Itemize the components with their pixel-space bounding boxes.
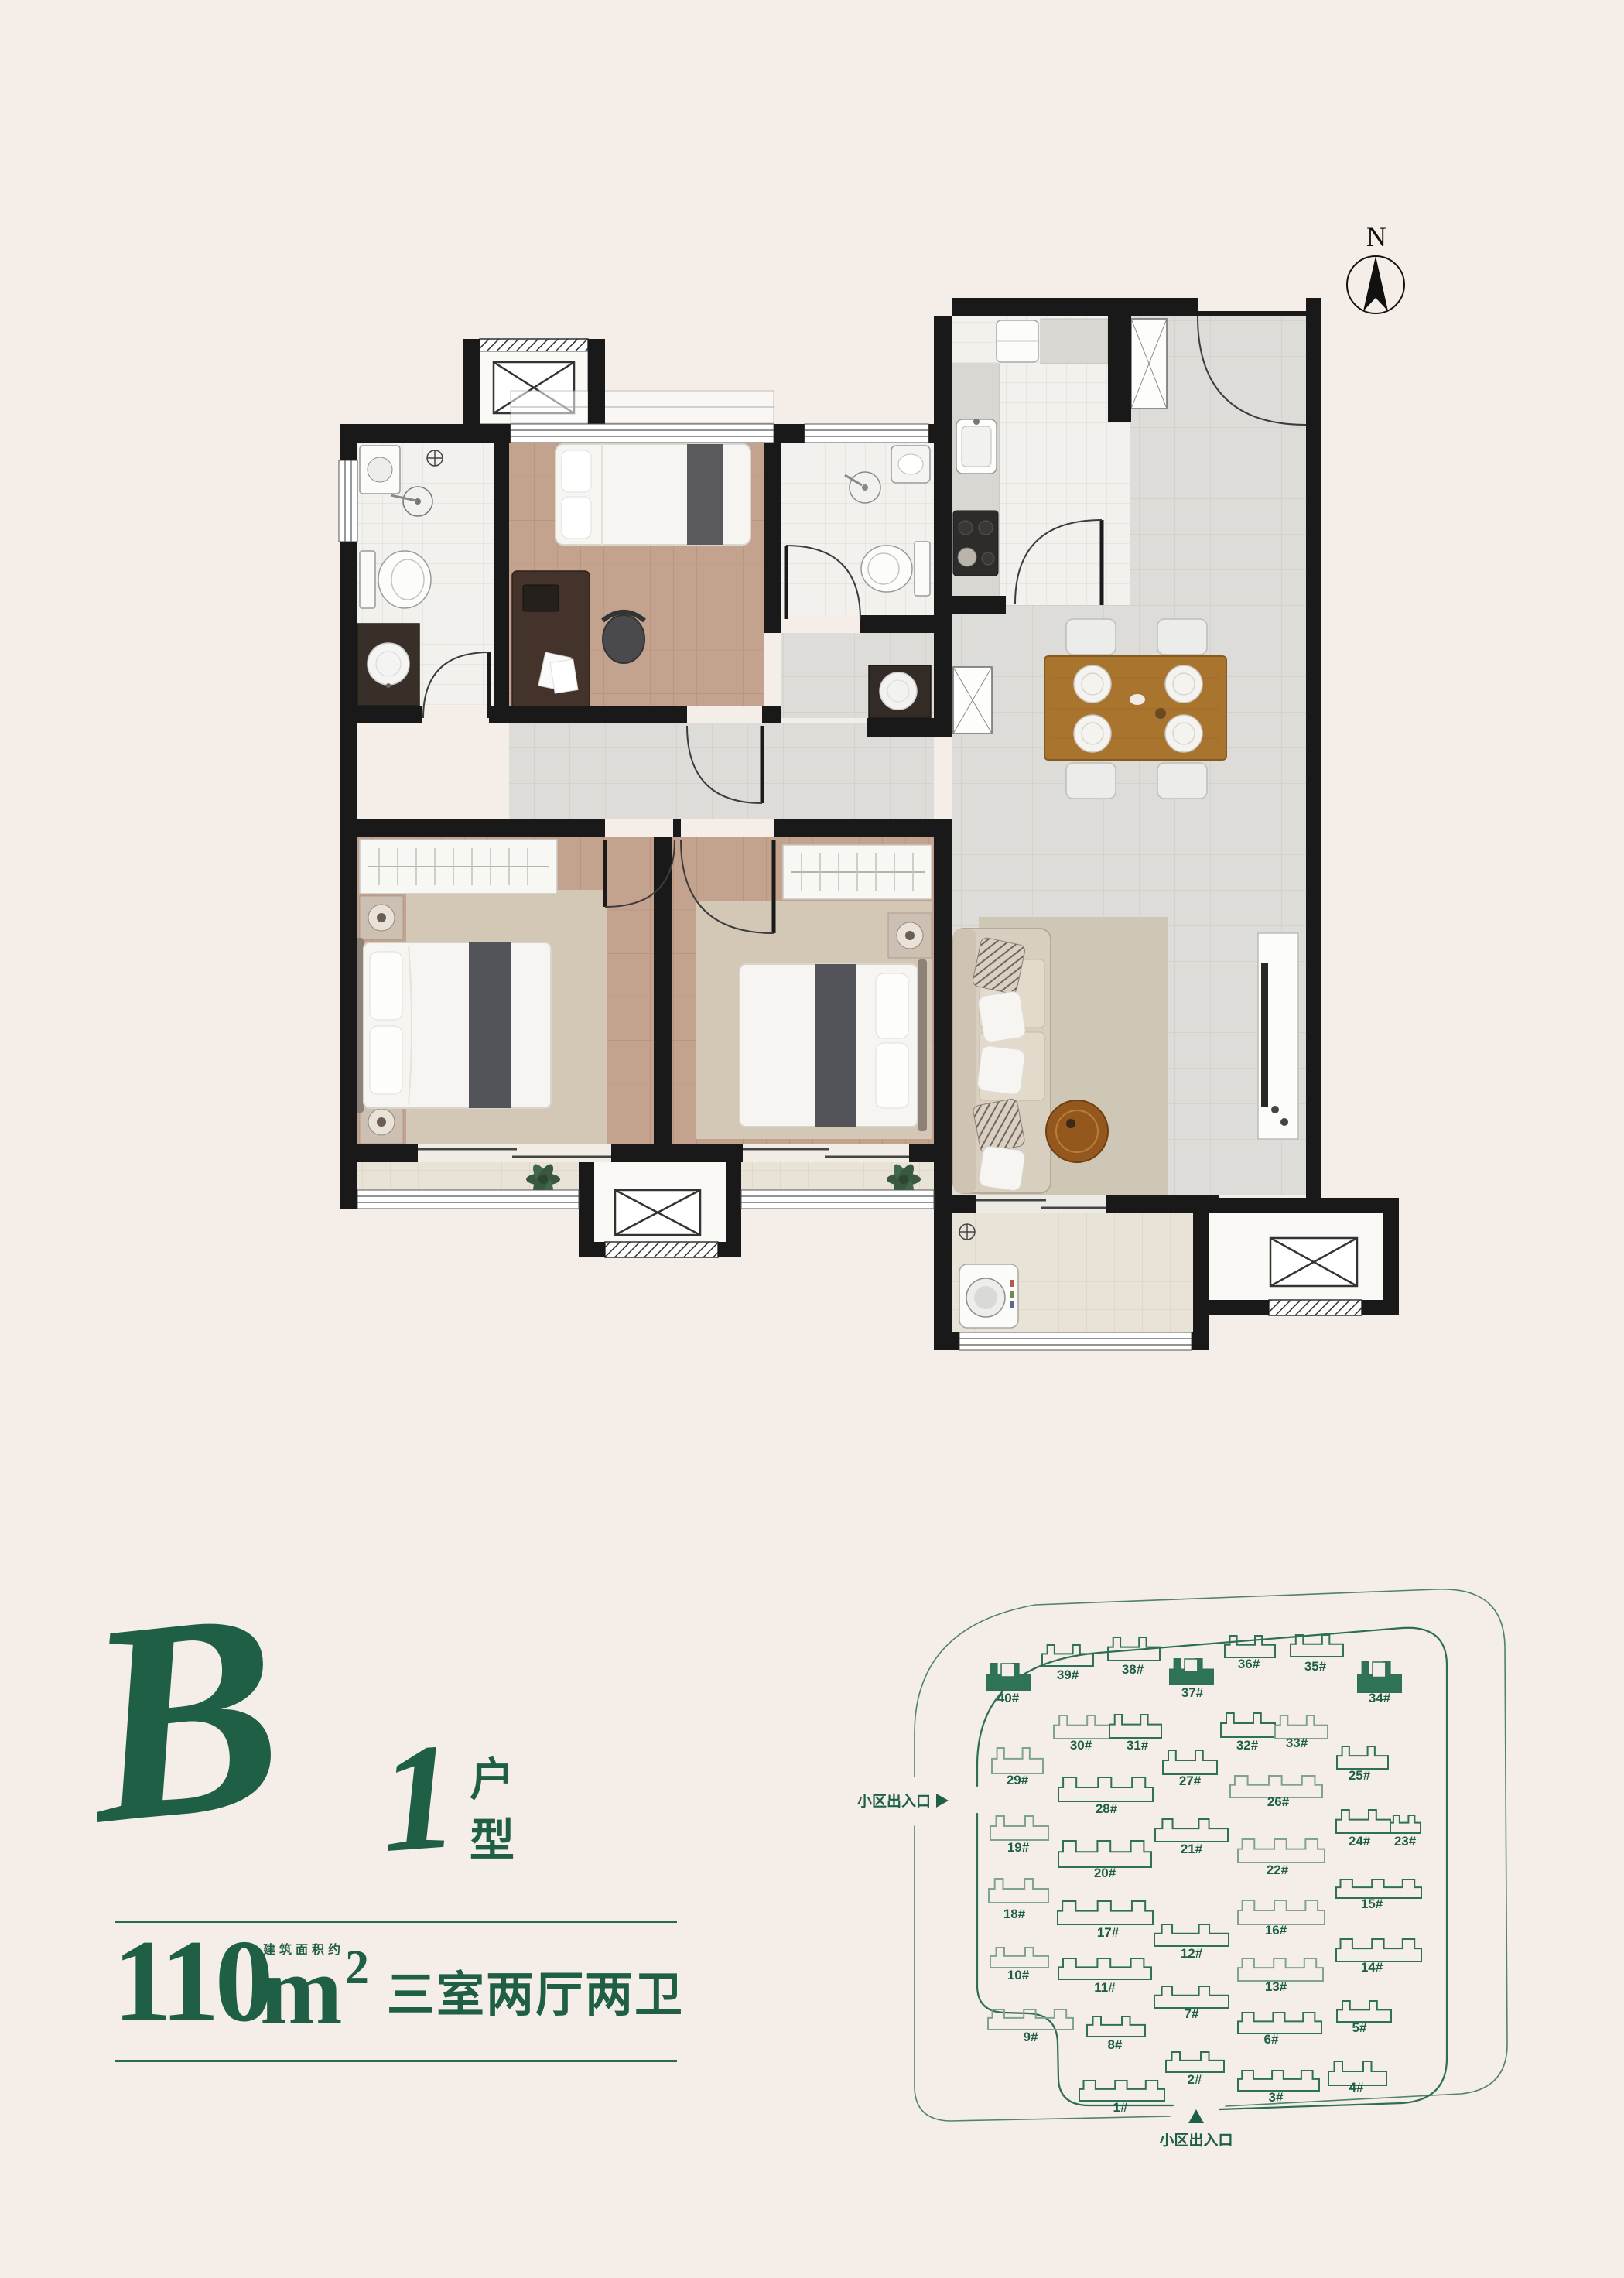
sofa-icon <box>953 929 1051 1193</box>
site-building <box>1058 1841 1151 1867</box>
dining-chair-icon <box>1157 763 1207 799</box>
site-building <box>1087 2016 1145 2037</box>
site-building-label: 6# <box>1264 2032 1279 2047</box>
entry-closet-icon <box>1131 319 1167 409</box>
site-building-label: 36# <box>1238 1657 1260 1671</box>
entrance-label-left: 小区出入口 <box>857 1792 931 1810</box>
site-building-label: 26# <box>1267 1794 1290 1809</box>
site-building-label: 35# <box>1304 1659 1327 1674</box>
window <box>741 1190 934 1209</box>
bed-icon <box>354 938 551 1113</box>
site-building <box>1163 1750 1217 1774</box>
site-building <box>1054 1715 1109 1739</box>
site-building <box>1238 1900 1325 1924</box>
toilet-icon <box>861 542 930 596</box>
site-building-label: 18# <box>1003 1907 1026 1921</box>
site-building-label: 13# <box>1265 1979 1287 1994</box>
site-building-label: 39# <box>1057 1667 1079 1682</box>
master-bedroom <box>354 840 557 1144</box>
entrance-arrow-up-icon <box>1188 2109 1204 2123</box>
site-building <box>1058 1958 1151 1979</box>
drain-icon <box>427 450 443 466</box>
stove-icon <box>953 511 998 576</box>
wardrobe-icon <box>783 845 932 899</box>
nightstand-icon <box>888 913 932 958</box>
area-unit: m <box>260 1941 343 2040</box>
fridge-icon <box>997 320 1038 362</box>
divider-line <box>115 2060 677 2062</box>
coffee-table-icon <box>1046 1100 1108 1162</box>
site-building-label: 11# <box>1094 1980 1116 1995</box>
floor-plan <box>325 286 1439 1370</box>
site-building <box>1337 2001 1391 2022</box>
site-building-label: 28# <box>1096 1801 1118 1816</box>
site-building-label: 24# <box>1349 1834 1371 1849</box>
dining-chair-icon <box>1157 619 1207 655</box>
site-building-tower <box>1001 1664 1014 1677</box>
room-configuration: 三室两厅两卫 <box>387 1972 684 2020</box>
site-building <box>1079 2081 1164 2101</box>
site-plan: 40#39#38#37#36#35#34#30#31#32#33#29#27#2… <box>836 1579 1532 2205</box>
sliding-door <box>976 1195 1106 1213</box>
site-building-label: 3# <box>1269 2090 1284 2105</box>
site-building <box>1058 1901 1153 1924</box>
site-building <box>1291 1635 1343 1657</box>
nightstand-icon <box>360 896 403 939</box>
site-building <box>1155 1819 1228 1842</box>
site-building-label: 19# <box>1007 1840 1030 1855</box>
unit-suffix-char: 型 <box>464 1818 520 1863</box>
site-building-label: 30# <box>1070 1738 1092 1753</box>
site-building-label: 1# <box>1113 2100 1128 2115</box>
site-building <box>1336 1810 1390 1833</box>
poster-page: N <box>0 0 1624 2278</box>
site-building <box>1336 1939 1421 1962</box>
site-building <box>989 1879 1048 1903</box>
sliding-door <box>743 1144 909 1162</box>
window <box>511 424 774 443</box>
site-building-label: 2# <box>1188 2072 1202 2087</box>
unit-number: 1 <box>375 1720 461 1876</box>
site-building <box>1238 2013 1321 2033</box>
site-building <box>990 1948 1048 1968</box>
area-superscript: 2 <box>345 1944 369 1992</box>
site-building-label: 25# <box>1349 1768 1371 1783</box>
site-building-label: 5# <box>1352 2020 1367 2035</box>
compass-north-label: N <box>1366 221 1386 252</box>
site-building-tower <box>1373 1662 1386 1678</box>
wardrobe-icon <box>360 840 557 894</box>
site-building-label: 16# <box>1265 1923 1287 1938</box>
window <box>959 1332 1192 1350</box>
site-building <box>1390 1815 1421 1833</box>
kitchen-sink-icon <box>956 419 997 474</box>
site-building <box>990 1816 1048 1840</box>
tall-cabinet-icon <box>953 667 992 734</box>
site-building <box>1238 1958 1323 1981</box>
site-building <box>1166 2052 1224 2072</box>
washing-machine-icon <box>959 1264 1018 1328</box>
window-sill <box>511 391 774 423</box>
site-building <box>1221 1713 1275 1737</box>
site-building-label: 15# <box>1361 1897 1383 1911</box>
sliding-door <box>418 1144 611 1162</box>
site-building <box>1154 1924 1229 1946</box>
site-building <box>1058 1777 1153 1801</box>
vanity-sink-icon <box>357 624 419 706</box>
buildings-layer: 40#39#38#37#36#35#34#30#31#32#33#29#27#2… <box>986 1635 1421 2115</box>
bed-icon <box>556 444 750 545</box>
site-building-label: 7# <box>1185 2006 1199 2021</box>
site-building-label: 29# <box>1007 1773 1029 1787</box>
area-value: 110 <box>113 1922 269 2040</box>
dining-chair-icon <box>1066 763 1116 799</box>
toilet-icon <box>360 551 431 608</box>
site-building-label: 27# <box>1179 1773 1202 1788</box>
site-building <box>1336 1880 1421 1898</box>
bed-icon <box>740 959 927 1131</box>
site-building-label: 21# <box>1181 1842 1203 1856</box>
site-building-label: 31# <box>1127 1738 1149 1753</box>
dining-chair-icon <box>1066 619 1116 655</box>
site-building-label: 9# <box>1024 2030 1038 2044</box>
window <box>339 460 357 542</box>
site-building-label: 14# <box>1361 1960 1383 1975</box>
site-building-label: 40# <box>997 1691 1020 1705</box>
ac-platform-center <box>594 1162 726 1257</box>
site-building-label: 34# <box>1369 1691 1391 1705</box>
site-building-label: 12# <box>1181 1946 1203 1961</box>
site-building <box>1154 1986 1229 2008</box>
site-building-label: 20# <box>1094 1866 1116 1880</box>
entrance-arrow-right-icon <box>936 1794 949 1808</box>
site-building-label: 32# <box>1236 1738 1259 1753</box>
site-building-label: 17# <box>1097 1925 1120 1940</box>
window <box>357 1190 579 1209</box>
site-building <box>1109 1715 1161 1738</box>
window <box>805 424 928 443</box>
entrance-label-bottom: 小区出入口 <box>1159 2131 1233 2149</box>
site-building <box>992 1748 1043 1773</box>
site-building <box>1238 2071 1319 2091</box>
site-building-label: 22# <box>1267 1862 1289 1877</box>
site-building-label: 8# <box>1108 2037 1123 2052</box>
site-building-tower <box>1185 1659 1198 1671</box>
site-building <box>1238 1839 1325 1862</box>
desk-icon <box>512 571 590 720</box>
site-building-label: 38# <box>1122 1662 1144 1677</box>
site-building-label: 33# <box>1286 1736 1308 1750</box>
drain-icon <box>959 1224 975 1240</box>
site-building-label: 37# <box>1181 1685 1204 1700</box>
kitchen-counter <box>1041 319 1108 364</box>
tv-console-icon <box>1258 933 1298 1139</box>
site-building-label: 10# <box>1007 1968 1030 1982</box>
site-building-label: 23# <box>1394 1834 1417 1849</box>
unit-suffix-char: 户 <box>464 1758 520 1803</box>
wall-sink-icon <box>891 446 930 483</box>
site-building-label: 4# <box>1349 2080 1364 2095</box>
site-building <box>1337 1746 1388 1769</box>
